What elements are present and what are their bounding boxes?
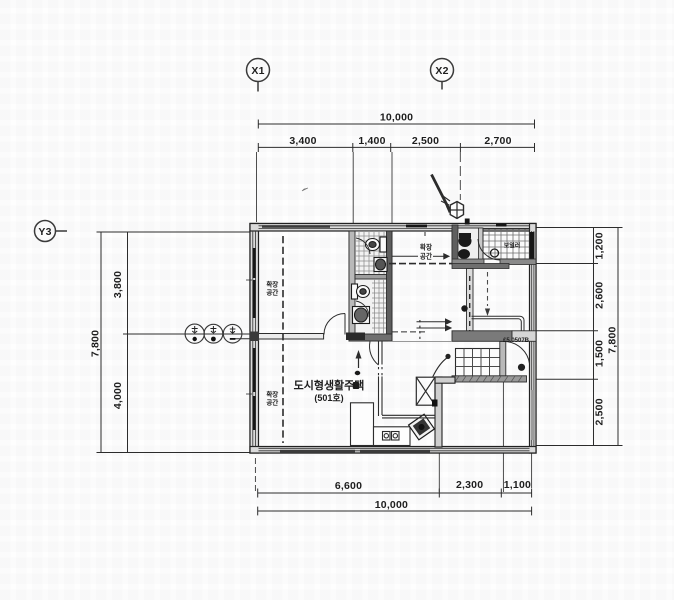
svg-text:1,500: 1,500 xyxy=(593,340,605,367)
svg-text:도시형생활주택: 도시형생활주택 xyxy=(294,378,365,392)
svg-text:2,700: 2,700 xyxy=(484,135,511,147)
svg-text:2,600: 2,600 xyxy=(593,282,605,309)
svg-text:공간: 공간 xyxy=(420,252,432,261)
svg-text:10,000: 10,000 xyxy=(375,499,408,511)
svg-text:X1: X1 xyxy=(251,65,264,77)
svg-text:£5.0507B: £5.0507B xyxy=(503,338,530,344)
svg-text:Y3: Y3 xyxy=(38,226,51,238)
svg-text:확장: 확장 xyxy=(420,243,432,252)
svg-text:(501호): (501호) xyxy=(314,393,343,403)
svg-text:1,100: 1,100 xyxy=(504,479,531,491)
svg-text:공간: 공간 xyxy=(266,288,278,297)
svg-text:3,400: 3,400 xyxy=(289,135,316,147)
svg-text:2,300: 2,300 xyxy=(456,479,483,491)
svg-text:1,400: 1,400 xyxy=(358,135,385,147)
svg-text:보일러: 보일러 xyxy=(504,242,521,250)
svg-text:X2: X2 xyxy=(435,65,448,77)
svg-text:7,800: 7,800 xyxy=(606,326,618,353)
svg-text:공간: 공간 xyxy=(266,398,278,407)
svg-text:2,500: 2,500 xyxy=(412,135,439,147)
svg-text:2,500: 2,500 xyxy=(593,398,605,425)
svg-text:확장: 확장 xyxy=(266,390,278,399)
svg-text:확장: 확장 xyxy=(266,280,278,289)
svg-text:1,200: 1,200 xyxy=(593,232,605,259)
svg-text:7,800: 7,800 xyxy=(90,330,102,357)
svg-text:6,600: 6,600 xyxy=(335,480,362,492)
svg-text:4,000: 4,000 xyxy=(112,382,124,409)
svg-text:3,800: 3,800 xyxy=(112,271,124,298)
svg-text:10,000: 10,000 xyxy=(380,112,413,124)
